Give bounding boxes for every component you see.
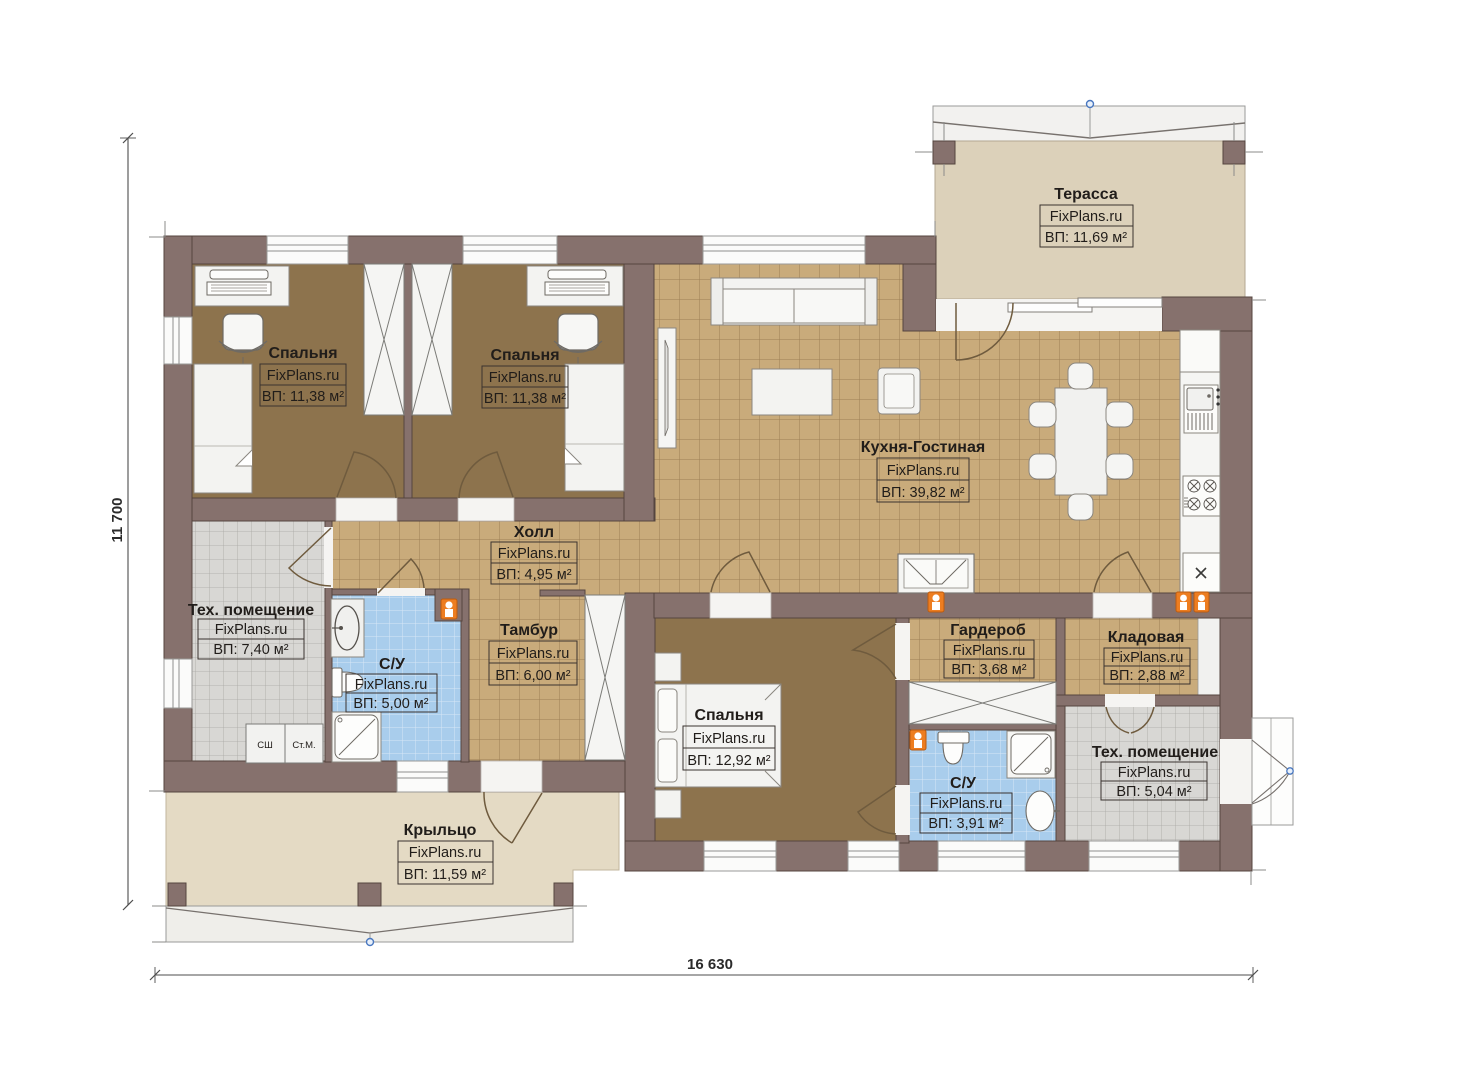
svg-text:FixPlans.ru: FixPlans.ru xyxy=(489,370,562,386)
svg-text:ВП: 11,38 м²: ВП: 11,38 м² xyxy=(262,389,344,405)
svg-text:FixPlans.ru: FixPlans.ru xyxy=(498,546,571,562)
svg-text:С/У: С/У xyxy=(950,775,977,792)
svg-text:FixPlans.ru: FixPlans.ru xyxy=(497,646,570,662)
svg-text:16 630: 16 630 xyxy=(687,956,733,973)
svg-text:ВП: 2,88 м²: ВП: 2,88 м² xyxy=(1109,668,1184,684)
svg-text:С/У: С/У xyxy=(379,656,406,673)
svg-text:ВП: 6,00 м²: ВП: 6,00 м² xyxy=(495,668,570,684)
svg-text:ВП: 3,91 м²: ВП: 3,91 м² xyxy=(928,816,1003,832)
svg-text:FixPlans.ru: FixPlans.ru xyxy=(693,731,766,747)
svg-text:ВП: 39,82 м²: ВП: 39,82 м² xyxy=(881,485,964,501)
svg-text:Крыльцо: Крыльцо xyxy=(404,822,477,839)
svg-text:Кладовая: Кладовая xyxy=(1108,629,1185,646)
svg-text:FixPlans.ru: FixPlans.ru xyxy=(887,463,960,479)
svg-text:СШ: СШ xyxy=(257,740,273,751)
svg-text:Спальня: Спальня xyxy=(490,347,559,364)
svg-text:Тех. помещение: Тех. помещение xyxy=(188,602,314,619)
svg-text:Ст.М.: Ст.М. xyxy=(292,740,315,751)
svg-text:Холл: Холл xyxy=(514,524,554,541)
svg-text:FixPlans.ru: FixPlans.ru xyxy=(953,643,1026,659)
svg-text:FixPlans.ru: FixPlans.ru xyxy=(930,796,1003,812)
svg-text:FixPlans.ru: FixPlans.ru xyxy=(1050,209,1123,225)
svg-text:Терасса: Терасса xyxy=(1054,186,1118,203)
svg-text:FixPlans.ru: FixPlans.ru xyxy=(215,622,288,638)
svg-text:11 700: 11 700 xyxy=(109,497,126,542)
svg-text:ВП: 3,68 м²: ВП: 3,68 м² xyxy=(951,662,1026,678)
svg-text:ВП: 5,00 м²: ВП: 5,00 м² xyxy=(353,696,428,712)
svg-text:ВП: 11,38 м²: ВП: 11,38 м² xyxy=(484,391,566,407)
svg-text:ВП: 7,40 м²: ВП: 7,40 м² xyxy=(213,642,288,658)
svg-text:ВП: 11,59 м²: ВП: 11,59 м² xyxy=(404,867,486,883)
svg-text:ВП: 4,95 м²: ВП: 4,95 м² xyxy=(496,567,571,583)
svg-text:Спальня: Спальня xyxy=(268,345,337,362)
svg-text:Спальня: Спальня xyxy=(694,707,763,724)
svg-text:Тамбур: Тамбур xyxy=(500,622,558,639)
svg-text:ВП: 11,69 м²: ВП: 11,69 м² xyxy=(1045,230,1127,246)
svg-text:FixPlans.ru: FixPlans.ru xyxy=(355,677,428,693)
svg-text:ВП: 5,04 м²: ВП: 5,04 м² xyxy=(1116,784,1191,800)
svg-text:FixPlans.ru: FixPlans.ru xyxy=(1111,650,1184,666)
svg-text:Кухня-Гостиная: Кухня-Гостиная xyxy=(861,439,985,456)
svg-text:Гардероб: Гардероб xyxy=(950,622,1026,639)
svg-text:ВП: 12,92 м²: ВП: 12,92 м² xyxy=(687,753,770,769)
svg-text:FixPlans.ru: FixPlans.ru xyxy=(267,368,340,384)
svg-text:Тех. помещение: Тех. помещение xyxy=(1092,744,1218,761)
svg-text:FixPlans.ru: FixPlans.ru xyxy=(409,845,482,861)
svg-text:FixPlans.ru: FixPlans.ru xyxy=(1118,765,1191,781)
